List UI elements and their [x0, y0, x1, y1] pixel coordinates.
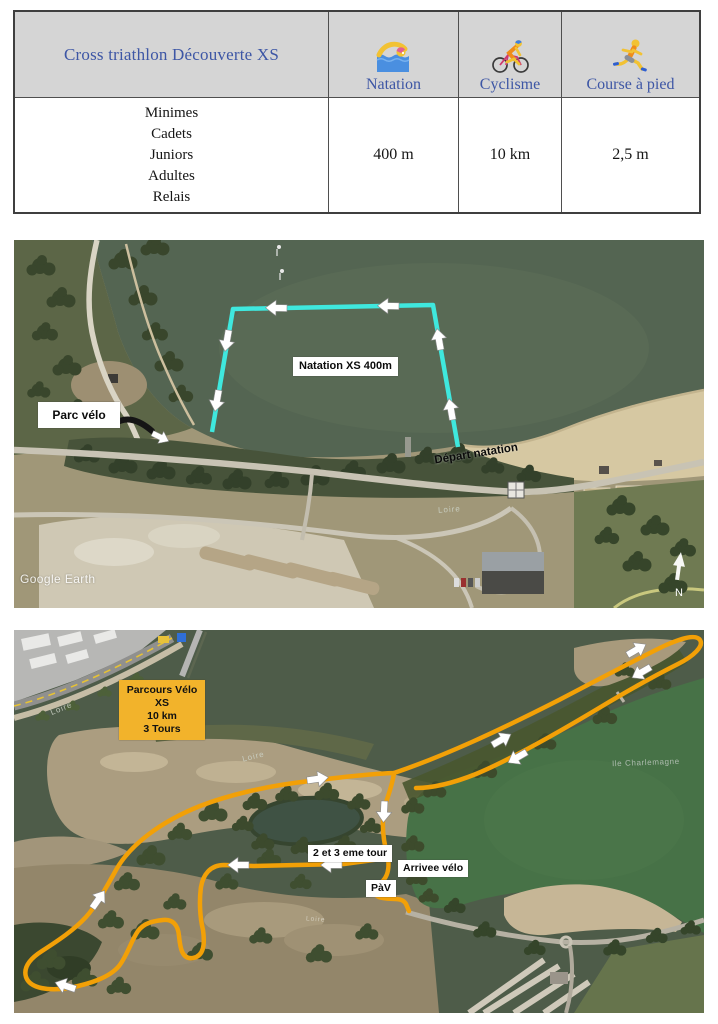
arrivee-velo-label: Arrivee vélo: [398, 860, 468, 877]
southeast-green: [574, 480, 704, 608]
category-item: Adultes: [148, 166, 195, 187]
pav-label: PàV: [366, 880, 396, 897]
lake-sheen: [484, 760, 684, 880]
categories-cell: Minimes Cadets Juniors Adultes Relais: [15, 98, 329, 212]
swim-course-map: N Natation XS 400m Parc vélo Départ nata…: [14, 240, 704, 608]
blue-road-sign: [177, 633, 186, 642]
beach-hut: [599, 466, 609, 474]
swimmer-icon: [374, 40, 414, 74]
river-name-label: Loire: [438, 504, 461, 515]
bike-info-line1: Parcours Vélo XS: [121, 684, 203, 710]
bike-map-satellite: [14, 630, 704, 1013]
bike-course-map: Parcours Vélo XS 10 km 3 Tours 2 et 3 em…: [14, 630, 704, 1013]
bike-distance-cell: 10 km: [459, 98, 562, 212]
pier: [405, 437, 411, 457]
parc-velo-label: Parc vélo: [38, 402, 120, 428]
column-label-natation: Natation: [366, 76, 421, 94]
road-number-sign: [158, 636, 169, 643]
column-header-course: Course à pied: [562, 12, 699, 98]
google-earth-watermark: Google Earth: [20, 572, 96, 586]
document-page: Cross triathlon Découverte XS Natation: [0, 0, 718, 1024]
beach-hut: [654, 460, 662, 466]
bike-course-info-box: Parcours Vélo XS 10 km 3 Tours: [119, 680, 205, 740]
column-label-course: Course à pied: [587, 76, 675, 94]
distance-table: Cross triathlon Découverte XS Natation: [13, 10, 701, 214]
tour-2-3-label: 2 et 3 eme tour: [308, 845, 392, 862]
swim-distance-cell: 400 m: [329, 98, 459, 212]
bike-info-line3: 3 Tours: [121, 723, 203, 736]
north-letter: N: [675, 587, 683, 599]
river-name-label: Loire: [306, 915, 326, 923]
bike-info-line2: 10 km: [121, 710, 203, 723]
column-header-cyclisme: Cyclisme: [459, 12, 562, 98]
water-sheen: [219, 263, 649, 433]
run-distance-cell: 2,5 m: [562, 98, 699, 212]
category-item: Relais: [153, 187, 191, 208]
table-title-cell: Cross triathlon Découverte XS: [15, 12, 329, 98]
category-item: Minimes: [145, 103, 198, 124]
category-item: Juniors: [150, 145, 193, 166]
column-label-cyclisme: Cyclisme: [480, 76, 540, 94]
table-title: Cross triathlon Découverte XS: [64, 45, 279, 65]
swim-course-label: Natation XS 400m: [293, 357, 398, 376]
runner-icon: [611, 38, 651, 74]
column-header-natation: Natation: [329, 12, 459, 98]
cyclist-icon: [490, 38, 530, 74]
category-item: Cadets: [151, 124, 192, 145]
